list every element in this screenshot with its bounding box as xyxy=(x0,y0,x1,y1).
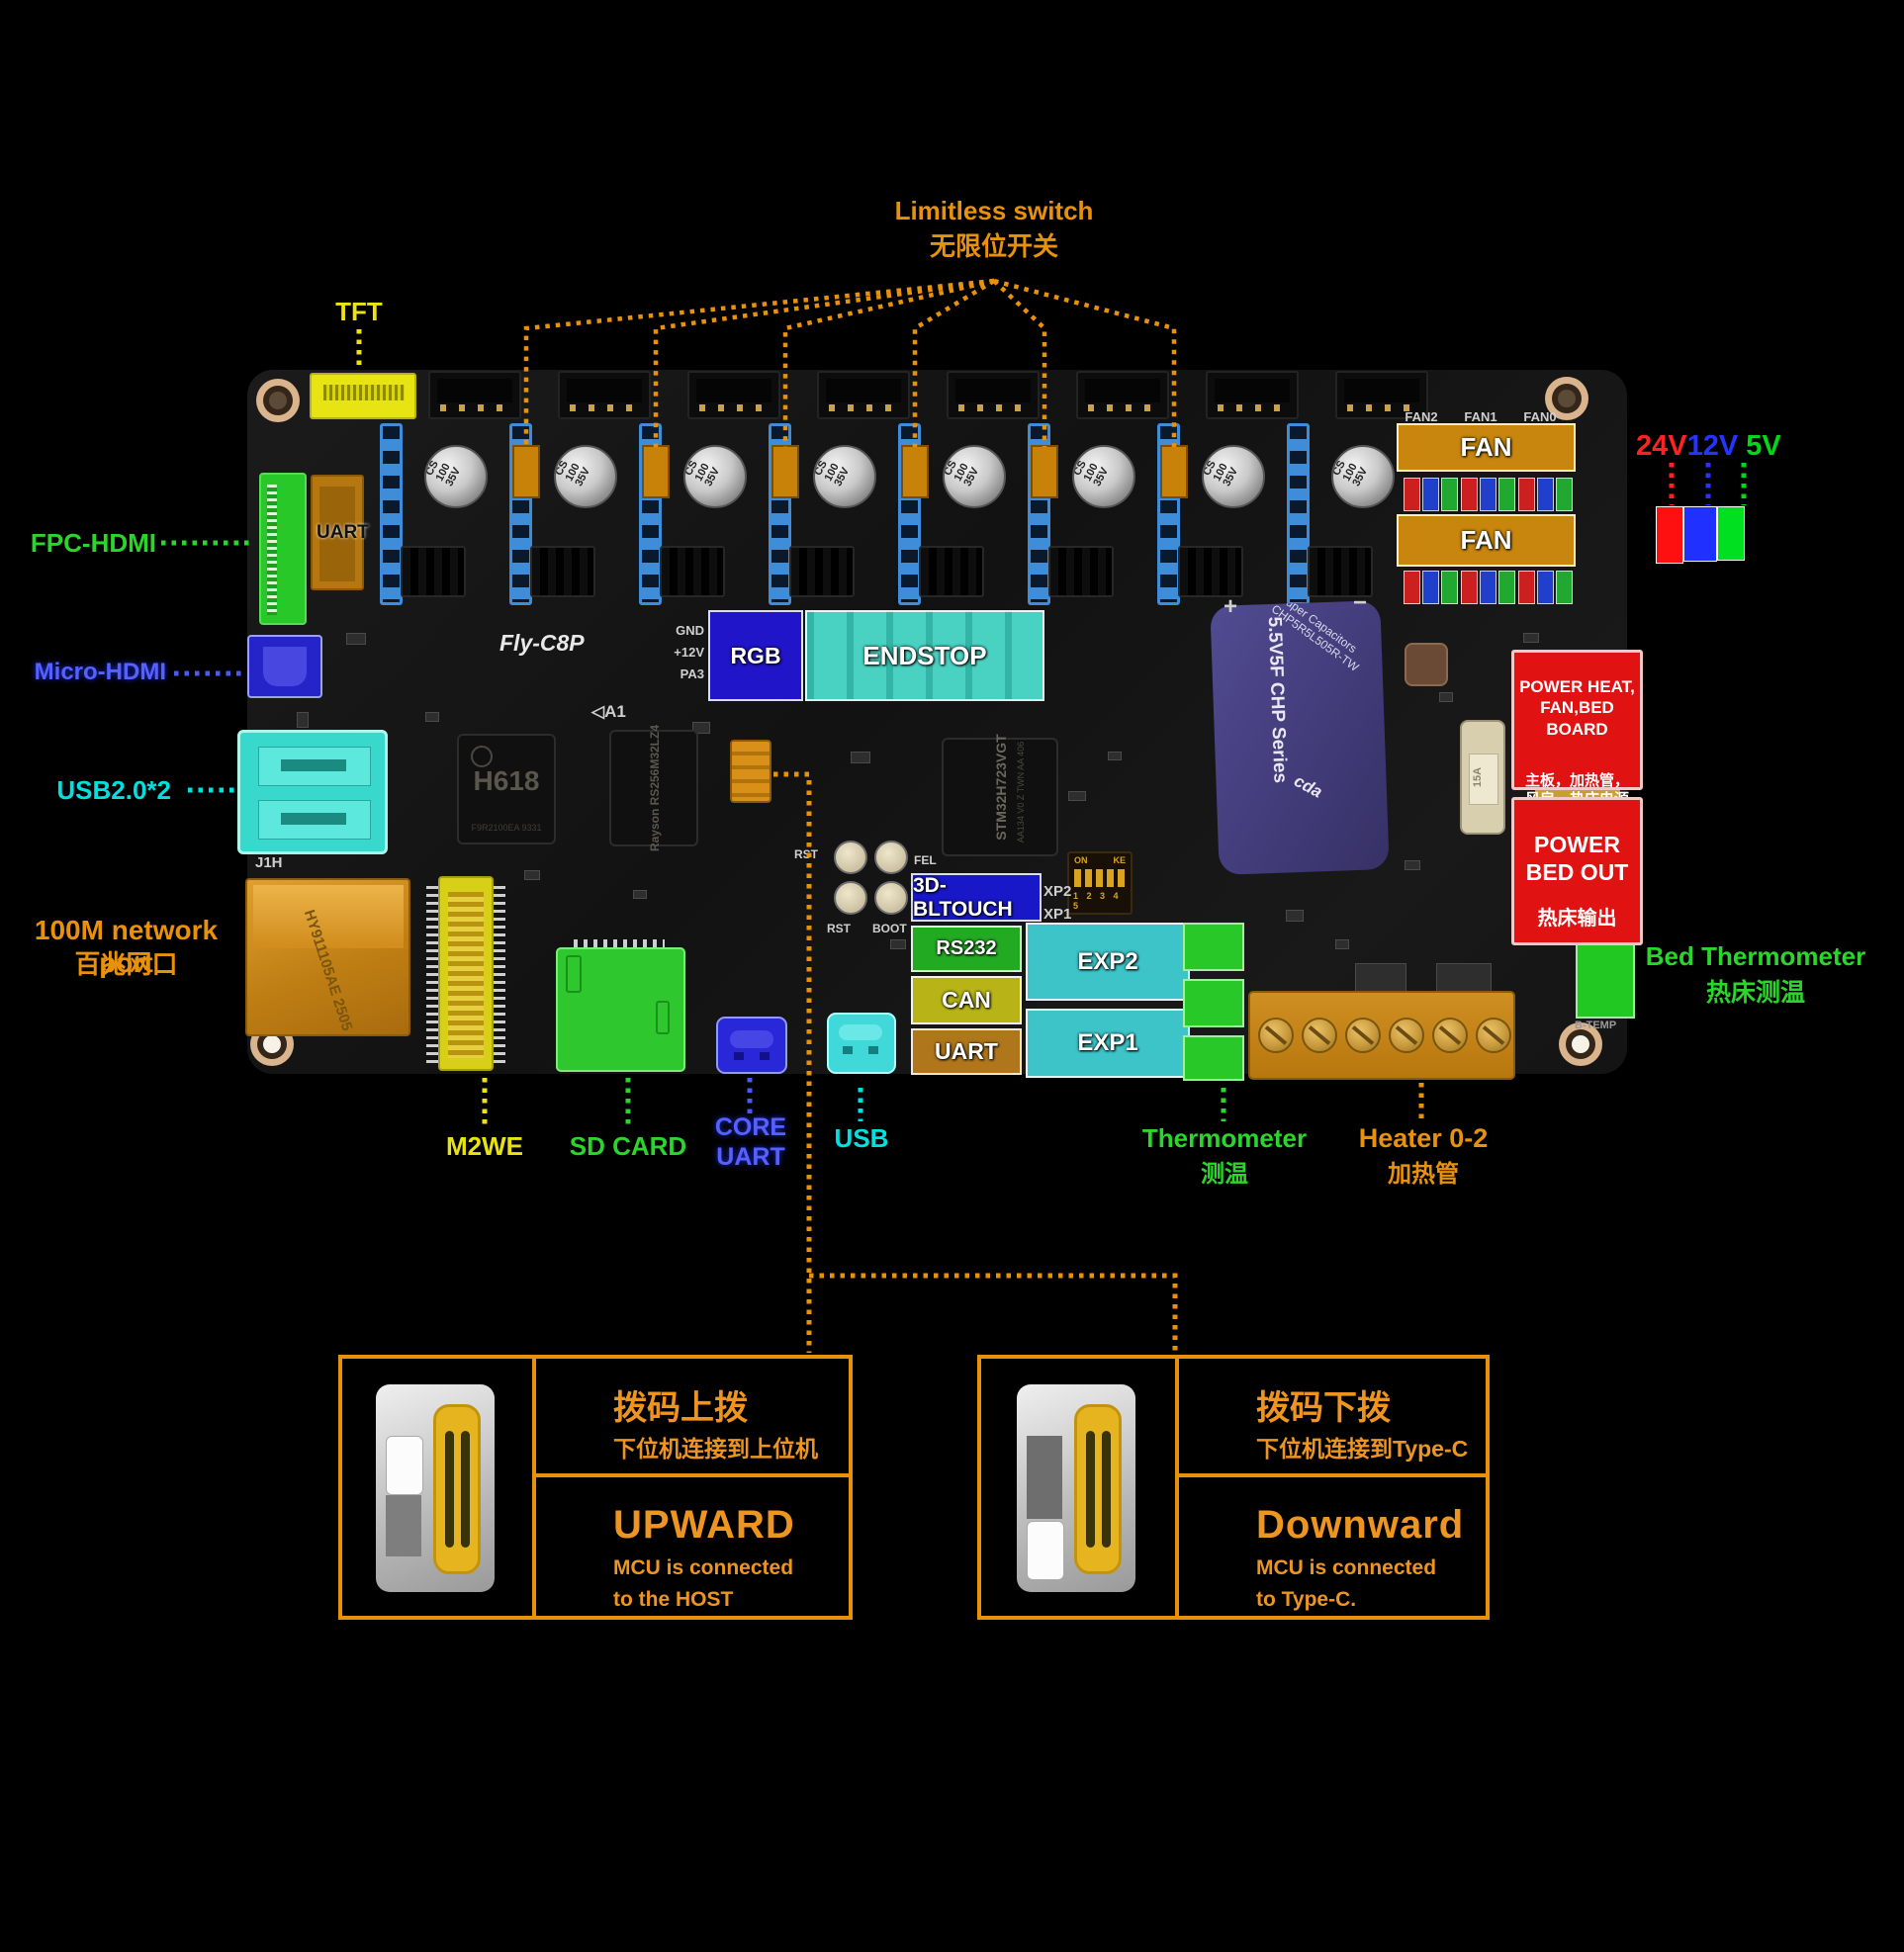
smd-component xyxy=(1523,633,1539,643)
capacitor-label: CS 100 35V xyxy=(683,456,723,489)
bed-thermometer-label-zh: 热床测温 xyxy=(1632,979,1879,1009)
capacitor-label: CS 100 35V xyxy=(554,456,593,489)
power-bed-text-en: POWER BED OUT xyxy=(1514,832,1640,886)
electrolytic-capacitor: CS 100 35V xyxy=(943,445,1006,508)
fuse-label: 15A xyxy=(1472,767,1484,787)
rst-silkscreen: RST xyxy=(794,847,818,861)
smd-component xyxy=(524,870,540,880)
mounting-hole xyxy=(256,379,300,422)
motor-connector xyxy=(1206,371,1299,419)
panel-divider xyxy=(1175,1359,1179,1616)
heater-label-zh: 加热管 xyxy=(1314,1161,1533,1189)
voltage-jumper xyxy=(1422,478,1439,511)
allwinner-logo-icon xyxy=(471,746,493,767)
electrolytic-capacitor: CS 100 35V xyxy=(683,445,747,508)
limitless-switch-label-zh: 无限位开关 xyxy=(846,231,1142,262)
power-bed-text-zh: 热床输出 xyxy=(1514,902,1640,931)
thermometer-port xyxy=(1183,1035,1244,1081)
upward-en-line2: to the HOST xyxy=(613,1588,733,1612)
core-uart-label: CORE UART xyxy=(692,1113,809,1172)
swatch-5v xyxy=(1717,506,1745,561)
voltage-jumper xyxy=(1537,478,1554,511)
dip-switch-down-graphic xyxy=(1017,1384,1135,1592)
m2we-socket xyxy=(438,876,494,1071)
capacitor-label: CS 100 35V xyxy=(424,456,464,489)
limitless-switch-label-en: Limitless switch xyxy=(846,196,1142,226)
voltage-jumper xyxy=(1518,571,1535,604)
pcb-board: CS 100 35VCS 100 35VCS 100 35VCS 100 35V… xyxy=(247,370,1627,1074)
electrolytic-capacitor: CS 100 35V xyxy=(1202,445,1265,508)
terminal-screw xyxy=(1302,1018,1337,1053)
tft-connector xyxy=(310,373,416,419)
capacitor-label: CS 100 35V xyxy=(943,456,982,489)
sd-card-label: SD CARD xyxy=(544,1131,712,1162)
xp2-silkscreen: XP2 xyxy=(1043,883,1071,900)
jumper-header-block xyxy=(660,546,725,597)
uart-overlay: UART xyxy=(911,1028,1022,1075)
downward-en-line2: to Type-C. xyxy=(1256,1588,1356,1612)
voltage-jumper xyxy=(1556,478,1573,511)
supercapacitor: 5.5V5F CHP Series Super Capacitors CHP5R… xyxy=(1210,600,1389,875)
voltage-jumper xyxy=(1480,478,1496,511)
panel-divider xyxy=(1179,1473,1486,1477)
legend-5v: 5V xyxy=(1746,430,1780,462)
panel-divider xyxy=(536,1473,849,1477)
smd-component xyxy=(1335,939,1349,949)
boot-button xyxy=(874,881,908,915)
voltage-jumper xyxy=(1441,571,1458,604)
jumper-header-block xyxy=(1178,546,1243,597)
power-heat-panel: POWER HEAT, FAN,BED BOARD 主板，加热管， 风扇，热床电… xyxy=(1511,650,1643,790)
b-temp-silkscreen: B-TEMP xyxy=(1575,1020,1616,1031)
smd-component xyxy=(1405,860,1420,870)
pa3-silkscreen: PA3 xyxy=(645,666,704,681)
jumper-header-block xyxy=(1048,546,1114,597)
smd-component xyxy=(851,752,870,763)
ram-name: Rayson RS256M32LZ4 xyxy=(648,709,662,867)
capacitor-label: CS 100 35V xyxy=(1331,456,1371,489)
supercap-series: 5.5V5F CHP Series xyxy=(1262,600,1292,809)
thermometer-label-zh: 测温 xyxy=(1116,1161,1333,1189)
jumper-header-block xyxy=(789,546,855,597)
thermometer-port xyxy=(1183,979,1244,1027)
dip-levers xyxy=(1074,869,1126,887)
voltage-jumper xyxy=(1404,478,1420,511)
fel-silkscreen: FEL xyxy=(914,853,937,867)
mcu-switch-path-right xyxy=(809,1276,1175,1353)
soc-name: H618 xyxy=(459,765,554,797)
voltage-jumper xyxy=(1461,478,1478,511)
voltage-jumper xyxy=(1404,571,1420,604)
mcu-name: STM32H723VGT xyxy=(993,708,1009,866)
switch-slider-up xyxy=(386,1436,423,1495)
m2-pins-right xyxy=(494,886,505,1064)
legend-12v: 12V xyxy=(1687,430,1739,462)
exp2-overlay: EXP2 xyxy=(1026,923,1190,1001)
limitless-switch-pad xyxy=(1160,445,1188,498)
motor-connector xyxy=(687,371,780,419)
voltage-jumper xyxy=(1480,571,1496,604)
terminal-screw xyxy=(1476,1018,1511,1053)
swatch-24v xyxy=(1656,506,1683,564)
dip-switch-up-graphic xyxy=(376,1384,495,1592)
limitless-switch-pad xyxy=(901,445,929,498)
rst2-silkscreen: RST xyxy=(827,922,851,935)
thermometer-port xyxy=(1183,923,1244,971)
usb-connector xyxy=(827,1013,896,1074)
smd-component xyxy=(1439,692,1453,702)
plus12v-silkscreen: +12V xyxy=(645,645,704,660)
j1h-silkscreen: J1H xyxy=(255,854,283,871)
plus-silkscreen: + xyxy=(1224,593,1237,621)
smd-component xyxy=(1286,910,1304,922)
smd-component xyxy=(346,633,366,645)
downward-en-title: Downward xyxy=(1256,1503,1464,1548)
mcu-code: AA134 V0 Z TWN AA 406 xyxy=(1016,723,1026,861)
voltage-legend: 24V12V 5V xyxy=(1636,429,1781,463)
network-label-zh: 百兆网口 xyxy=(10,949,242,980)
supercap-brand: cda xyxy=(1291,771,1325,802)
motor-connector xyxy=(947,371,1040,419)
motor-connector xyxy=(1076,371,1169,419)
rst-button xyxy=(834,841,867,874)
swatch-12v xyxy=(1683,506,1717,562)
upward-en-title: UPWARD xyxy=(613,1503,795,1548)
endstop-overlay: ENDSTOP xyxy=(805,610,1044,701)
minus-silkscreen: − xyxy=(1353,589,1367,617)
fpc-hdmi-connector xyxy=(259,473,307,625)
exp1-overlay: EXP1 xyxy=(1026,1009,1190,1078)
bed-thermometer-connector xyxy=(1576,939,1635,1019)
board-name-silkscreen: Fly-C8P xyxy=(499,630,585,657)
fan1-silkscreen: FAN1 xyxy=(1451,409,1510,424)
can-overlay: CAN xyxy=(911,976,1022,1024)
rs232-overlay: RS232 xyxy=(911,926,1022,972)
fpc-hdmi-label: FPC-HDMI xyxy=(10,528,156,559)
downward-zh-sub: 下位机连接到Type-C xyxy=(1256,1430,1468,1464)
fan2-silkscreen: FAN2 xyxy=(1392,409,1451,424)
smd-component xyxy=(425,712,439,722)
usb2-connector xyxy=(237,730,388,854)
rgb-overlay: RGB xyxy=(708,610,803,701)
legend-24v: 24V xyxy=(1636,430,1687,462)
electrolytic-capacitor: CS 100 35V xyxy=(1331,445,1395,508)
terminal-screw xyxy=(1389,1018,1424,1053)
limitless-switch-pad xyxy=(642,445,670,498)
voltage-jumper xyxy=(1498,478,1515,511)
dip-ke-label: KE xyxy=(1113,855,1126,865)
a1-silkscreen: ◁A1 xyxy=(591,702,626,722)
motor-connector xyxy=(558,371,651,419)
ethernet-connector: HY911105AE 2505 xyxy=(245,878,410,1036)
dip-switch: ON KE 1 2 3 4 5 xyxy=(1067,851,1133,915)
gnd-silkscreen: GND xyxy=(645,623,704,638)
switch-yellow-body xyxy=(433,1404,481,1574)
uart-connector: UART xyxy=(311,475,364,590)
fan-overlay-top: FAN xyxy=(1397,423,1576,472)
power-heat-text-en: POWER HEAT, FAN,BED BOARD xyxy=(1514,676,1640,740)
thermometer-label-en: Thermometer xyxy=(1116,1123,1333,1154)
electrolytic-capacitor: CS 100 35V xyxy=(813,445,876,508)
xp1-silkscreen: XP1 xyxy=(1043,906,1071,923)
upward-zh-title: 拨码上拨 xyxy=(613,1380,748,1429)
fel-button xyxy=(874,841,908,874)
switch-track xyxy=(386,1495,421,1556)
switch-track xyxy=(1027,1436,1062,1519)
micro-hdmi-label: Micro-HDMI xyxy=(26,659,166,686)
terminal-screw xyxy=(1258,1018,1294,1053)
dip-numbers: 1 2 3 4 5 xyxy=(1073,891,1131,911)
tft-label: TFT xyxy=(319,297,399,327)
voltage-jumper xyxy=(1518,478,1535,511)
rst2-button xyxy=(834,881,867,915)
micro-hdmi-connector xyxy=(247,635,322,698)
annotated-board-diagram: CS 100 35VCS 100 35VCS 100 35VCS 100 35V… xyxy=(0,0,1904,1952)
usb2-label: USB2.0*2 xyxy=(38,775,171,806)
motor-connector xyxy=(428,371,521,419)
power-bed-panel: POWER BED OUT 热床输出 xyxy=(1511,797,1643,945)
voltage-swatches xyxy=(1656,506,1745,564)
fuse-15a: 15A xyxy=(1460,720,1505,835)
limitless-switch-pad xyxy=(1031,445,1058,498)
electrolytic-capacitor: CS 100 35V xyxy=(554,445,617,508)
voltage-jumper xyxy=(1537,571,1554,604)
motor-connector xyxy=(817,371,910,419)
downward-zh-title: 拨码下拨 xyxy=(1256,1380,1391,1429)
driver-socket-header xyxy=(1287,423,1310,605)
smd-component xyxy=(890,939,906,949)
core-uart-label-line1: CORE xyxy=(692,1113,809,1143)
switch-slider-down xyxy=(1027,1521,1064,1580)
panel-divider xyxy=(532,1359,536,1616)
boot-silkscreen: BOOT xyxy=(872,922,907,935)
driver-socket-header xyxy=(380,423,403,605)
voltage-jumper xyxy=(1461,571,1478,604)
voltage-jumper xyxy=(1556,571,1573,604)
m2we-label: M2WE xyxy=(425,1131,544,1162)
smd-component xyxy=(633,890,647,899)
dip-on-label: ON xyxy=(1074,855,1088,865)
mcu-select-switch xyxy=(730,740,771,803)
mcu-chip: STM32H723VGT AA134 V0 Z TWN AA 406 xyxy=(942,738,1058,856)
downward-panel: 拨码下拨 下位机连接到Type-C Downward MCU is connec… xyxy=(977,1355,1490,1620)
electrolytic-capacitor: CS 100 35V xyxy=(1072,445,1135,508)
capacitor-label: CS 100 35V xyxy=(813,456,853,489)
upward-en-line1: MCU is connected xyxy=(613,1556,793,1580)
sd-card-slot xyxy=(556,947,685,1072)
switch-yellow-body xyxy=(1074,1404,1122,1574)
bltouch-overlay: 3D-BLTOUCH xyxy=(911,873,1042,922)
limitless-switch-pad xyxy=(771,445,799,498)
upward-zh-sub: 下位机连接到上位机 xyxy=(613,1430,818,1464)
usb-label: USB xyxy=(803,1123,920,1154)
limitless-switch-pad xyxy=(512,445,540,498)
soc-code: F9R2100EA 9331 xyxy=(459,823,554,833)
jumper-header-block xyxy=(919,546,984,597)
soc-chip: H618 F9R2100EA 9331 xyxy=(457,734,556,844)
electrolytic-capacitor: CS 100 35V xyxy=(424,445,488,508)
capacitor-label: CS 100 35V xyxy=(1202,456,1241,489)
smd-component xyxy=(297,712,309,728)
smd-component xyxy=(1068,791,1086,801)
fan-overlay-bottom: FAN xyxy=(1397,514,1576,567)
terminal-screw xyxy=(1345,1018,1381,1053)
jumper-header-block xyxy=(401,546,466,597)
terminal-screw xyxy=(1432,1018,1468,1053)
smd-component xyxy=(1108,752,1122,760)
fan0-silkscreen: FAN0 xyxy=(1510,409,1570,424)
bed-thermometer-label-en: Bed Thermometer xyxy=(1632,941,1879,972)
core-uart-connector xyxy=(716,1017,787,1074)
jumper-header-block xyxy=(530,546,595,597)
core-uart-label-line2: UART xyxy=(692,1143,809,1173)
voltage-jumper xyxy=(1498,571,1515,604)
capacitor-label: CS 100 35V xyxy=(1072,456,1112,489)
inductor xyxy=(1405,643,1448,686)
voltage-jumper xyxy=(1422,571,1439,604)
heater-label-en: Heater 0-2 xyxy=(1314,1123,1533,1155)
upward-panel: 拨码上拨 下位机连接到上位机 UPWARD MCU is connected t… xyxy=(338,1355,853,1620)
downward-en-line1: MCU is connected xyxy=(1256,1556,1436,1580)
uart-connector-label: UART xyxy=(317,522,415,544)
voltage-jumper xyxy=(1441,478,1458,511)
m2-pins-left xyxy=(426,886,438,1064)
ram-chip: Rayson RS256M32LZ4 xyxy=(609,730,698,846)
